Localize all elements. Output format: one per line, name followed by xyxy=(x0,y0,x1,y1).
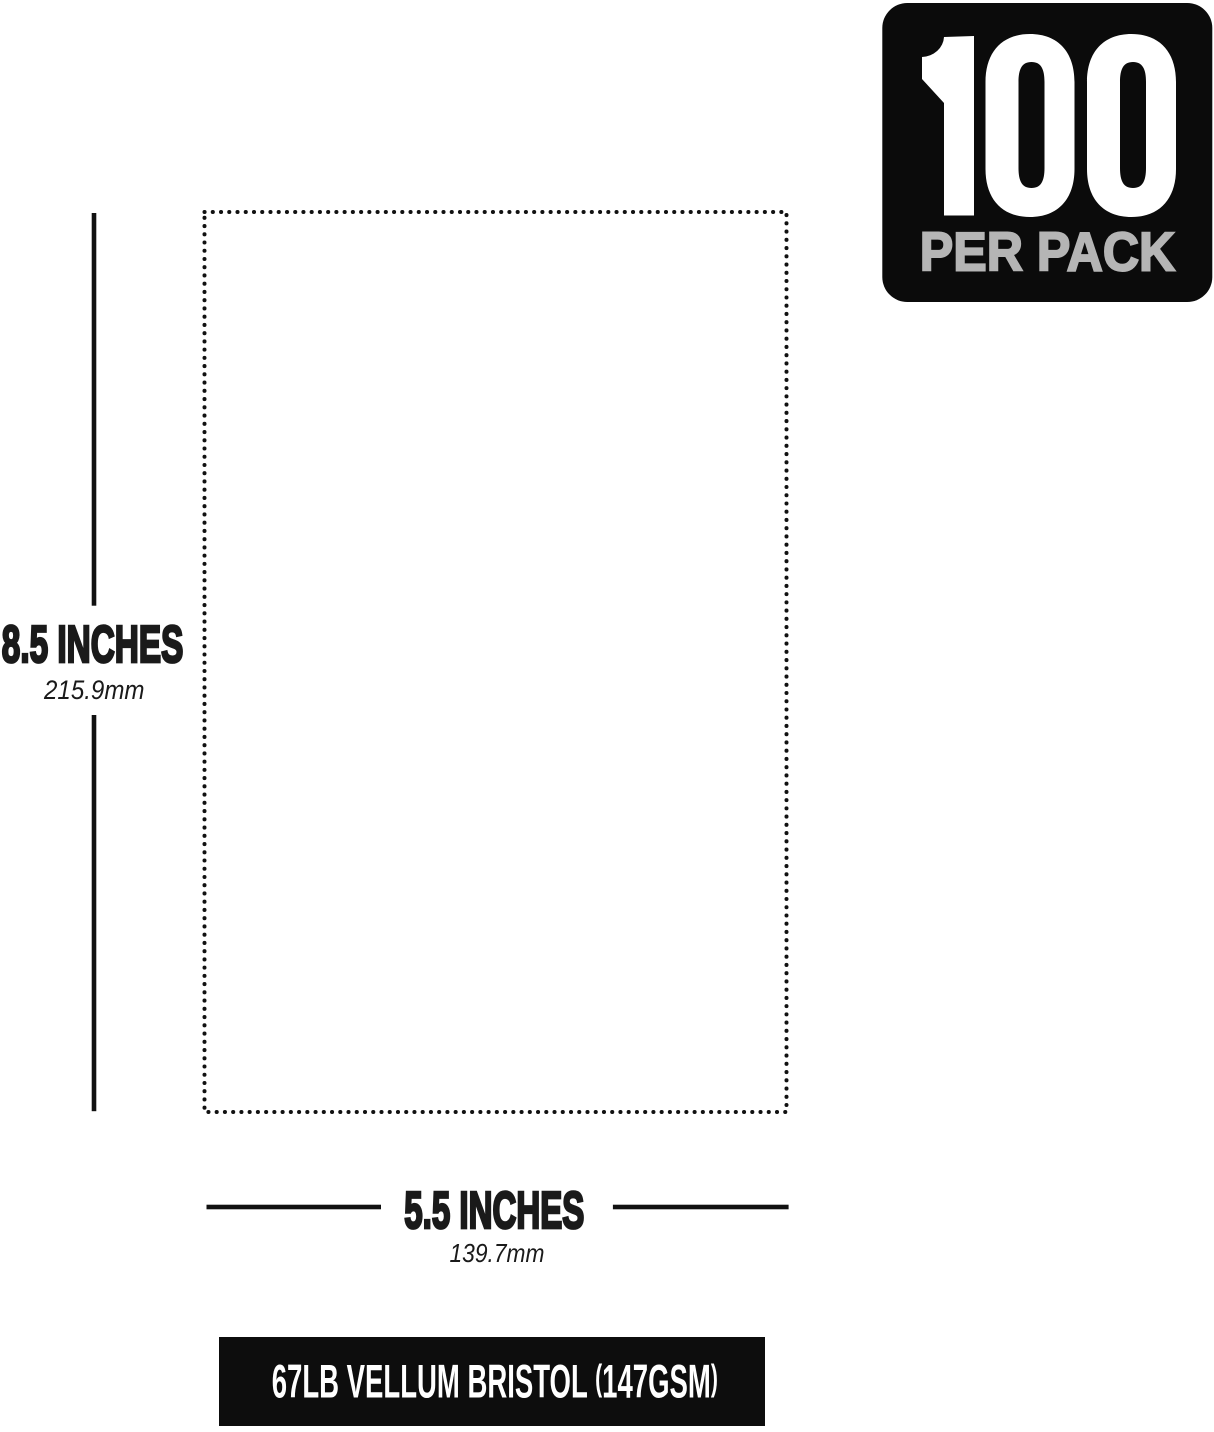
svg-text:PER PACK: PER PACK xyxy=(920,221,1176,283)
svg-text:147GSM: 147GSM xyxy=(602,1356,711,1408)
svg-text:5.5 INCHES: 5.5 INCHES xyxy=(404,1182,584,1240)
svg-text:215.9mm: 215.9mm xyxy=(43,675,144,705)
svg-text:139.7mm: 139.7mm xyxy=(450,1238,545,1268)
svg-text:8.5 INCHES: 8.5 INCHES xyxy=(2,616,184,674)
svg-text:67LB VELLUM BRISTOL: 67LB VELLUM BRISTOL xyxy=(272,1356,588,1408)
svg-text:): ) xyxy=(711,1358,718,1398)
svg-text:(: ( xyxy=(595,1358,602,1398)
